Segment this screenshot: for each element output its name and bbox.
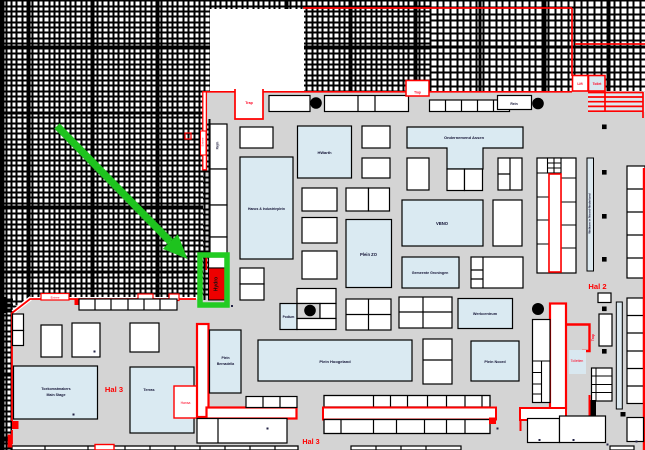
svg-text:Entree: Entree <box>51 296 60 300</box>
svg-text:Welkom in Noord-Nederland: Welkom in Noord-Nederland <box>588 193 592 233</box>
svg-text:Trap: Trap <box>245 101 253 105</box>
svg-text:Hal 3: Hal 3 <box>105 385 123 394</box>
svg-text:Toekomstmakers: Toekomstmakers <box>41 387 70 391</box>
svg-text:Trap: Trap <box>414 91 421 95</box>
svg-text:Toilet: Toilet <box>593 82 603 86</box>
svg-text:Toiletten: Toiletten <box>571 359 584 363</box>
svg-text:Main Stage: Main Stage <box>47 393 66 397</box>
svg-text:Hydro: Hydro <box>214 277 220 291</box>
svg-text:Werkcentrum: Werkcentrum <box>473 312 498 316</box>
svg-text:Rein: Rein <box>510 102 517 106</box>
svg-text:Hanos & Industrieplein: Hanos & Industrieplein <box>248 207 285 211</box>
svg-text:VBNO: VBNO <box>436 221 449 226</box>
svg-text:Podium: Podium <box>283 315 295 319</box>
svg-text:Hal 3: Hal 3 <box>302 437 319 446</box>
svg-text:Plein Hoogeland: Plein Hoogeland <box>319 359 351 364</box>
svg-text:Ondernemend Assen: Ondernemend Assen <box>444 135 485 140</box>
svg-text:Plein: Plein <box>221 356 229 360</box>
svg-text:Plein ZO: Plein ZO <box>360 252 378 257</box>
svg-text:Hal 2: Hal 2 <box>588 282 606 291</box>
svg-text:HWarth: HWarth <box>317 150 332 155</box>
svg-text:Rejm: Rejm <box>216 141 220 149</box>
svg-text:Trap: Trap <box>591 334 595 341</box>
svg-text:Bernadella: Bernadella <box>217 362 234 366</box>
svg-text:Entree: Entree <box>201 137 205 146</box>
svg-text:Terras: Terras <box>143 388 154 392</box>
svg-text:Hansa: Hansa <box>181 401 191 405</box>
svg-text:Gemeente Groningen: Gemeente Groningen <box>412 271 449 275</box>
svg-text:Plein Noord: Plein Noord <box>484 360 506 364</box>
svg-text:Lift: Lift <box>577 82 583 86</box>
